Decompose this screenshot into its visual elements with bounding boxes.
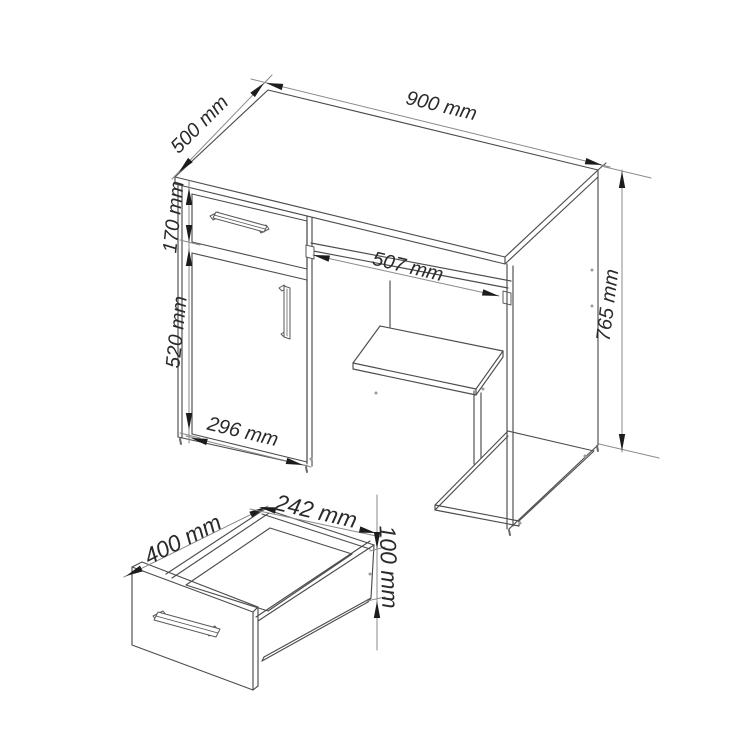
- background: [0, 0, 750, 750]
- drawer-height-label: 100 mm: [375, 525, 404, 609]
- desk-dimension-diagram: 900 mm 500 mm 170 mm 520 mm 296 mm: [0, 0, 750, 750]
- technical-drawing-page: 900 mm 500 mm 170 mm 520 mm 296 mm: [0, 0, 750, 750]
- tray-slide-bracket-left: [306, 245, 314, 259]
